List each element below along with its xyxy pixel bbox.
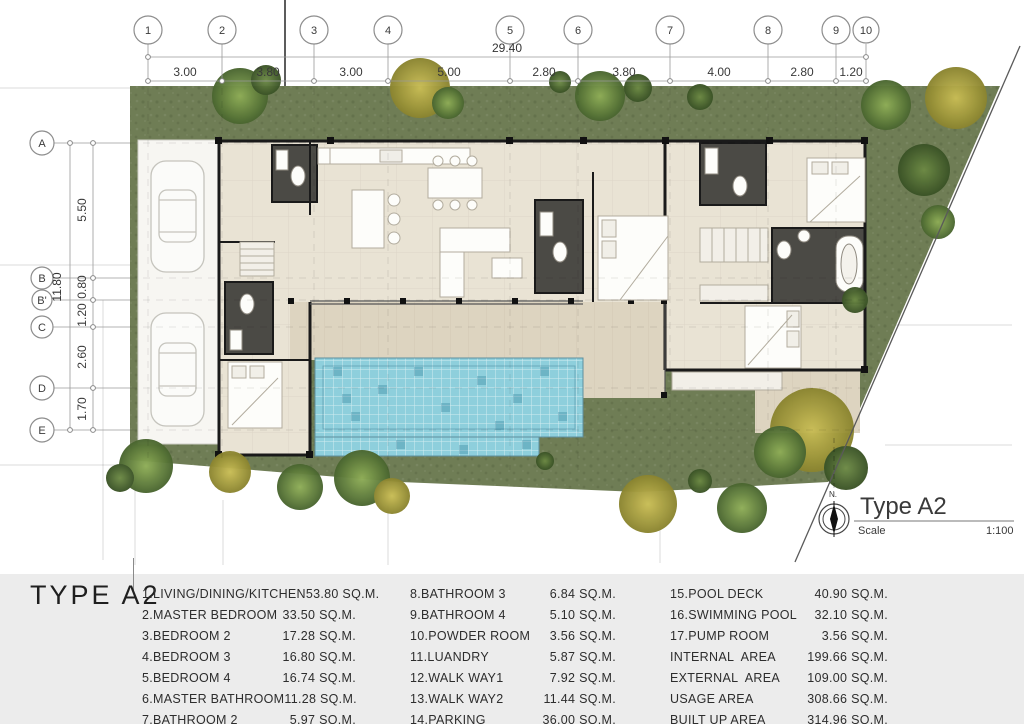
legend-heading: TYPE A2: [30, 580, 161, 611]
dimension-label: 3.80: [256, 65, 280, 79]
grid-bubble-label: D: [38, 383, 46, 395]
legend-row: 10.POWDER ROOM3.56 SQ.M.: [410, 626, 616, 647]
legend-row: 12.WALK WAY17.92 SQ.M.: [410, 668, 616, 689]
legend-area-value: 53.80 SQ.M.: [306, 584, 379, 605]
grid-bubble-label: 6: [575, 25, 581, 37]
legend-area-value: 16.80 SQ.M.: [283, 647, 356, 668]
grid-bubble-label: 2: [219, 25, 225, 37]
grid-bubble-label: 1: [145, 25, 151, 37]
dimension-label: 2.80: [532, 65, 556, 79]
legend-area-value: 314.96 SQ.M.: [807, 710, 888, 724]
grid-bubble-label: 7: [667, 25, 673, 37]
legend-column-2: 8.BATHROOM 36.84 SQ.M.9.BATHROOM 45.10 S…: [410, 584, 616, 724]
plan-title: Type A2: [860, 493, 947, 520]
legend-row: 4.BEDROOM 316.80 SQ.M.: [142, 647, 356, 668]
dimension-label: 3.00: [339, 65, 363, 79]
legend-column-3: 15.POOL DECK40.90 SQ.M.16.SWIMMING POOL3…: [670, 584, 888, 724]
legend-room-label: 5.BEDROOM 4: [142, 668, 231, 689]
grid-bubble-label: 5: [507, 25, 513, 37]
dimension-label: 1.20: [839, 65, 863, 79]
grid-bubble-label: C: [38, 322, 46, 334]
legend-room-label: INTERNAL AREA: [670, 647, 776, 668]
legend-area-value: 36.00 SQ.M.: [543, 710, 616, 724]
legend-row: EXTERNAL AREA109.00 SQ.M.: [670, 668, 888, 689]
legend-area-value: 308.66 SQ.M.: [807, 689, 888, 710]
legend-room-label: 13.WALK WAY2: [410, 689, 503, 710]
dimension-label: 1.70: [75, 397, 89, 421]
legend-row: 15.POOL DECK40.90 SQ.M.: [670, 584, 888, 605]
legend-area-value: 40.90 SQ.M.: [815, 584, 888, 605]
scale-value: 1:100: [986, 525, 1014, 537]
scale-label: Scale: [858, 525, 886, 537]
legend-room-label: 11.LUANDRY: [410, 647, 489, 668]
dimension-label: 2.80: [790, 65, 814, 79]
floor-plan-sheet: 1 2 3 4 5 6 7 8 9 10 29.40 3.00 3.80 3.0…: [0, 0, 1024, 724]
legend-room-label: 4.BEDROOM 3: [142, 647, 231, 668]
legend-row: 11.LUANDRY5.87 SQ.M.: [410, 647, 616, 668]
legend-area-value: 3.56 SQ.M.: [550, 626, 616, 647]
dimension-label: 0.80: [75, 275, 89, 299]
legend-row: 3.BEDROOM 217.28 SQ.M.: [142, 626, 356, 647]
title-block: N. Type A2 Scale 1:100: [819, 490, 1014, 537]
legend-area-value: 32.10 SQ.M.: [815, 605, 888, 626]
legend-room-label: EXTERNAL AREA: [670, 668, 780, 689]
legend-row: 16.SWIMMING POOL32.10 SQ.M.: [670, 605, 888, 626]
total-height-dimension: 11.80: [50, 272, 64, 301]
legend-row: 9.BATHROOM 45.10 SQ.M.: [410, 605, 616, 626]
legend-area-value: 3.56 SQ.M.: [822, 626, 888, 647]
grid-bubble-label: 4: [385, 25, 391, 37]
area-legend-panel: TYPE A2 1.LIVING/DINING/KITCHEN53.80 SQ.…: [0, 574, 1024, 724]
left-dimensions: A B B' C D E 11.80 5.50 0.80 1.20 2.60 1…: [30, 131, 130, 442]
legend-area-value: 5.97 SQ.M.: [290, 710, 356, 724]
legend-area-value: 17.28 SQ.M.: [283, 626, 356, 647]
legend-room-label: 6.MASTER BATHROOM: [142, 689, 284, 710]
grid-bubble-label: 3: [311, 25, 317, 37]
legend-row: 14.PARKING36.00 SQ.M.: [410, 710, 616, 724]
legend-column-1: 1.LIVING/DINING/KITCHEN53.80 SQ.M.2.MAST…: [142, 584, 356, 724]
north-label: N.: [829, 490, 837, 499]
dimension-label: 3.00: [173, 65, 197, 79]
grid-bubble-label: E: [38, 425, 45, 437]
legend-room-label: 12.WALK WAY1: [410, 668, 503, 689]
grid-bubble-label: B: [38, 273, 45, 285]
legend-room-label: USAGE AREA: [670, 689, 754, 710]
legend-room-label: 10.POWDER ROOM: [410, 626, 530, 647]
legend-room-label: 2.MASTER BEDROOM: [142, 605, 277, 626]
dimension-label: 2.60: [75, 345, 89, 369]
legend-room-label: 16.SWIMMING POOL: [670, 605, 797, 626]
dimension-label: 4.00: [707, 65, 731, 79]
grid-bubble-label: A: [38, 138, 46, 150]
legend-room-label: 9.BATHROOM 4: [410, 605, 506, 626]
legend-row: 6.MASTER BATHROOM11.28 SQ.M.: [142, 689, 356, 710]
grid-bubble-label: 9: [833, 25, 839, 37]
grid-bubble-label: B': [37, 295, 46, 307]
legend-row: 2.MASTER BEDROOM33.50 SQ.M.: [142, 605, 356, 626]
legend-row: INTERNAL AREA199.66 SQ.M.: [670, 647, 888, 668]
grid-bubble-label: 8: [765, 25, 771, 37]
legend-row: 5.BEDROOM 416.74 SQ.M.: [142, 668, 356, 689]
legend-room-label: 17.PUMP ROOM: [670, 626, 769, 647]
legend-room-label: BUILT UP AREA: [670, 710, 766, 724]
legend-area-value: 6.84 SQ.M.: [550, 584, 616, 605]
legend-area-value: 11.44 SQ.M.: [543, 689, 616, 710]
legend-room-label: 15.POOL DECK: [670, 584, 763, 605]
legend-row: 7.BATHROOM 25.97 SQ.M.: [142, 710, 356, 724]
dimension-label: 5.50: [75, 198, 89, 222]
dimension-label: 3.80: [612, 65, 636, 79]
legend-area-value: 7.92 SQ.M.: [550, 668, 616, 689]
legend-row: 13.WALK WAY211.44 SQ.M.: [410, 689, 616, 710]
legend-row: 17.PUMP ROOM3.56 SQ.M.: [670, 626, 888, 647]
total-width-dimension: 29.40: [492, 41, 522, 55]
legend-area-value: 199.66 SQ.M.: [807, 647, 888, 668]
legend-row: 8.BATHROOM 36.84 SQ.M.: [410, 584, 616, 605]
legend-area-value: 16.74 SQ.M.: [283, 668, 356, 689]
legend-area-value: 5.87 SQ.M.: [550, 647, 616, 668]
dimension-label: 1.20: [75, 303, 89, 327]
legend-room-label: 14.PARKING: [410, 710, 486, 724]
legend-area-value: 5.10 SQ.M.: [550, 605, 616, 626]
legend-room-label: 8.BATHROOM 3: [410, 584, 506, 605]
legend-room-label: 7.BATHROOM 2: [142, 710, 238, 724]
dimension-label: 5.00: [437, 65, 461, 79]
legend-room-label: 1.LIVING/DINING/KITCHEN: [142, 584, 306, 605]
legend-row: BUILT UP AREA314.96 SQ.M.: [670, 710, 888, 724]
legend-room-label: 3.BEDROOM 2: [142, 626, 231, 647]
legend-row: 1.LIVING/DINING/KITCHEN53.80 SQ.M.: [142, 584, 356, 605]
grid-bubble-label: 10: [860, 25, 872, 37]
legend-area-value: 33.50 SQ.M.: [283, 605, 356, 626]
legend-area-value: 109.00 SQ.M.: [807, 668, 888, 689]
legend-area-value: 11.28 SQ.M.: [284, 689, 357, 710]
legend-row: USAGE AREA308.66 SQ.M.: [670, 689, 888, 710]
